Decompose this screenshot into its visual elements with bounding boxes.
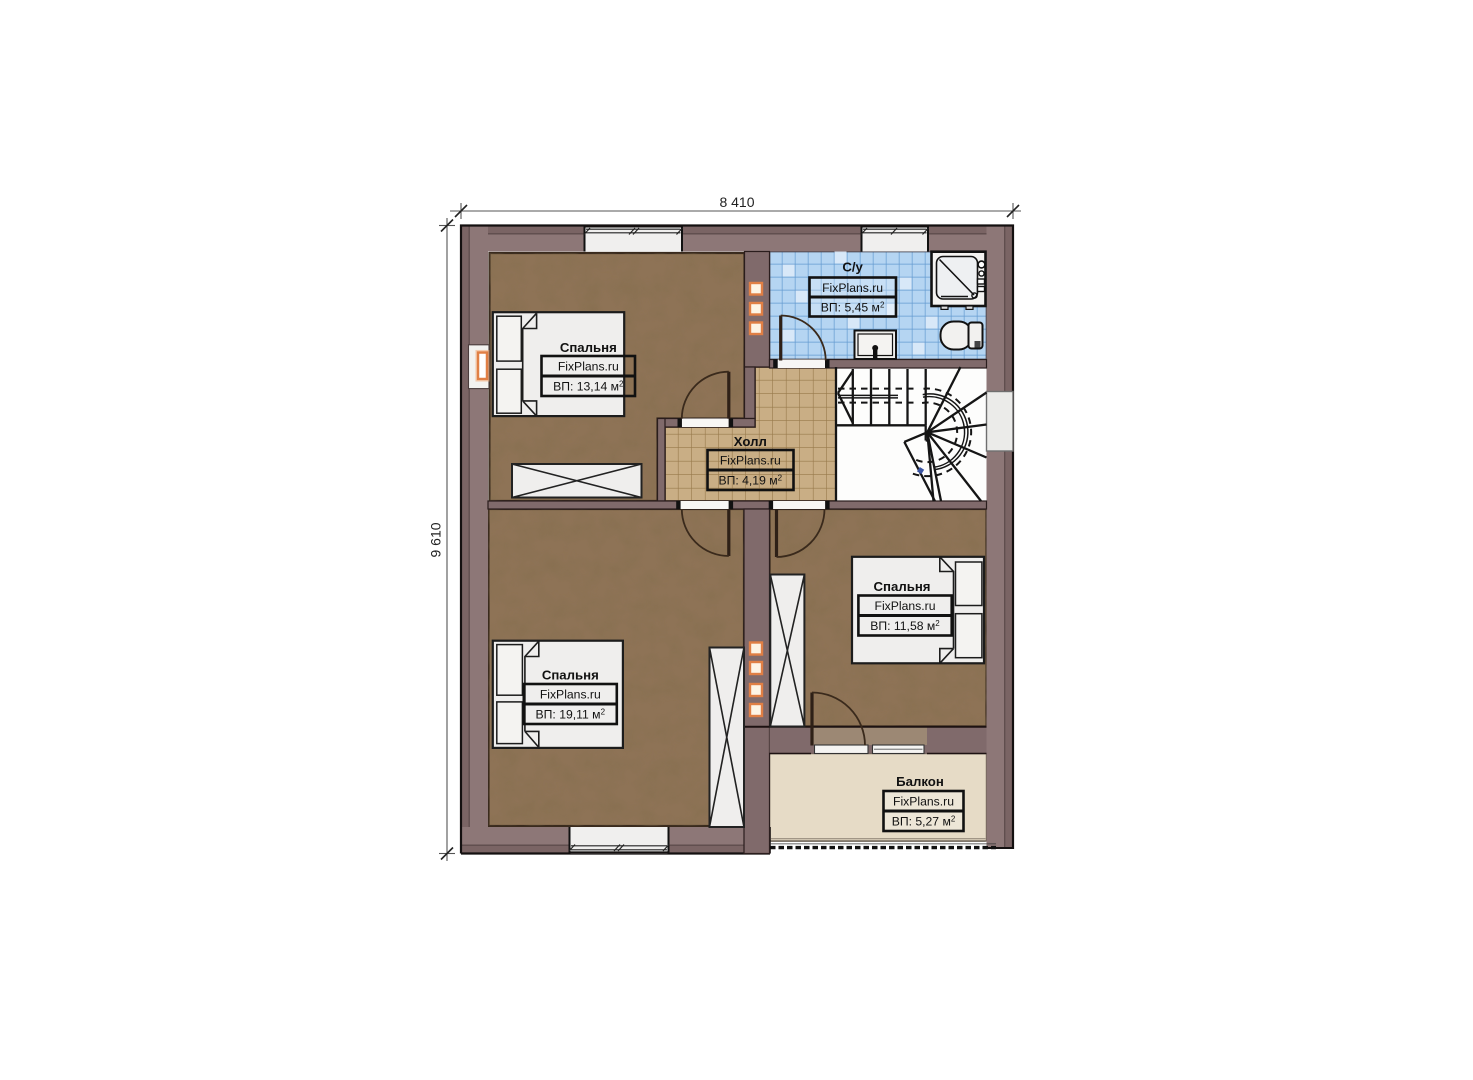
svg-text:ВП: 19,11 м2: ВП: 19,11 м2: [536, 708, 606, 722]
svg-text:8 410: 8 410: [719, 194, 754, 210]
svg-text:ВП: 11,58 м2: ВП: 11,58 м2: [870, 619, 940, 633]
svg-text:FixPlans.ru: FixPlans.ru: [875, 599, 936, 613]
svg-text:ВП: 5,27 м2: ВП: 5,27 м2: [892, 815, 956, 829]
svg-text:FixPlans.ru: FixPlans.ru: [558, 360, 619, 374]
svg-text:ВП: 5,45 м2: ВП: 5,45 м2: [821, 300, 885, 314]
svg-text:FixPlans.ru: FixPlans.ru: [893, 795, 954, 809]
svg-text:ВП: 4,19 м2: ВП: 4,19 м2: [718, 474, 782, 488]
svg-text:Спальня: Спальня: [542, 668, 599, 683]
svg-text:FixPlans.ru: FixPlans.ru: [822, 281, 883, 295]
svg-text:FixPlans.ru: FixPlans.ru: [540, 688, 601, 702]
svg-text:С/у: С/у: [842, 260, 863, 275]
svg-text:Балкон: Балкон: [896, 774, 944, 789]
svg-text:ВП: 13,14 м2: ВП: 13,14 м2: [553, 380, 624, 394]
svg-text:Холл: Холл: [734, 434, 767, 449]
svg-text:FixPlans.ru: FixPlans.ru: [720, 454, 781, 468]
svg-text:Спальня: Спальня: [874, 579, 931, 594]
svg-text:9 610: 9 610: [428, 522, 444, 557]
svg-text:Спальня: Спальня: [560, 340, 617, 355]
